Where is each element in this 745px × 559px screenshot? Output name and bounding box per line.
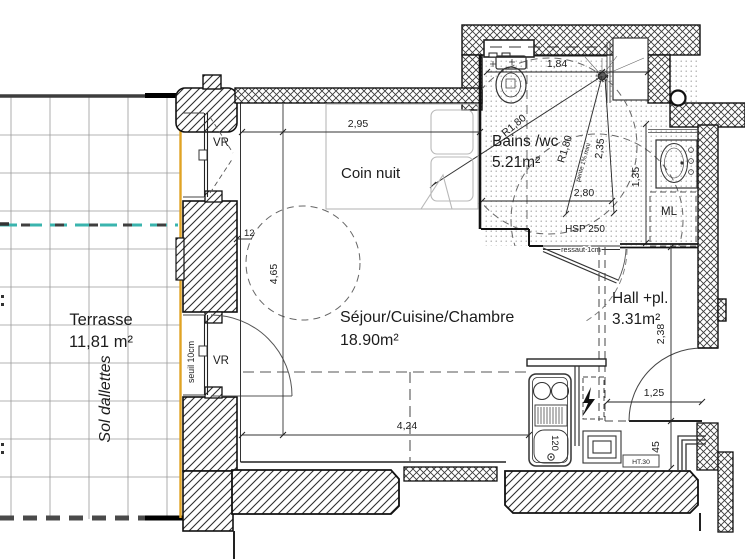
- dim-sejour-depth: 4,65: [268, 264, 280, 285]
- bath-wall-topright: [670, 103, 745, 127]
- facade-pier-mid-bump: [176, 238, 184, 280]
- bathroom: Bains /wc 5.21m² 1,84 R1,80 R1,80 pente …: [235, 25, 745, 348]
- room-area-hall: 3.31m²: [612, 311, 660, 328]
- facade-pier-top-tab: [203, 75, 221, 89]
- kitchen-unit: [529, 374, 571, 466]
- upper-window-vr-label: VR: [213, 137, 229, 149]
- upper-window-handle: [199, 150, 207, 160]
- sejour-dashed-zone: [243, 372, 527, 462]
- room-label-bains: Bains /wc: [492, 133, 559, 150]
- hsp-label: HSP 250: [565, 224, 605, 235]
- room-label-terrasse: Terrasse: [69, 311, 132, 329]
- dim-hall-width: 1,25: [644, 387, 665, 399]
- facade-pier-top: [176, 88, 237, 132]
- dim-bains-depth: 2,35: [593, 138, 607, 160]
- dim-coin-nuit-width: 2,95: [348, 118, 369, 130]
- ml-label: ML: [661, 206, 678, 218]
- dim-kitchen-unit: 120: [549, 435, 560, 451]
- seuil-label: seuil 10cm: [186, 341, 196, 383]
- room-area-terrasse: 11,81 m²: [69, 333, 133, 351]
- floor-plan: Terrasse 11,81 m² Sol dallettes VR VR se…: [0, 0, 745, 559]
- room-label-sejour: Séjour/Cuisine/Chambre: [340, 309, 514, 326]
- bath-wall-right: [698, 125, 718, 348]
- floor-plan-drawing: Terrasse 11,81 m² Sol dallettes VR VR se…: [0, 0, 745, 559]
- dim-basin-bay: 1,35: [630, 167, 642, 188]
- bottom-wall-light: [404, 467, 497, 481]
- wall-stub-lines: [234, 513, 700, 559]
- coin-nuit-top-band: [235, 88, 482, 103]
- ressaut-label: ressaut 1cm: [561, 245, 601, 254]
- room-area-sejour: 18.90m²: [340, 332, 399, 349]
- dim-bains-diag: 2,80: [574, 187, 595, 199]
- kitchen: 120: [527, 359, 606, 466]
- electrical-bolt-icon: [582, 387, 595, 417]
- turning-circle: [246, 206, 360, 320]
- lower-window-handle: [199, 346, 207, 356]
- entry-pier-outer: [718, 452, 733, 532]
- entry-pier-inner: [697, 423, 718, 470]
- kitchen-cabinet-lines: [575, 366, 579, 446]
- burner: [552, 383, 569, 400]
- room-label-hall: Hall +pl.: [612, 290, 668, 307]
- room-label-coin-nuit: Coin nuit: [341, 165, 401, 182]
- burner: [534, 383, 551, 400]
- kitchen-counter-edge: [527, 359, 606, 366]
- bath-wall-right-bump: [718, 299, 726, 321]
- bottom-wall-right: [505, 471, 698, 513]
- terrace: Terrasse 11,81 m² Sol dallettes: [0, 96, 183, 520]
- dim-sejour-width: 4,24: [397, 420, 418, 432]
- lower-window-door: VR seuil 10cm: [183, 315, 292, 396]
- terrace-tile-grid: [0, 97, 180, 519]
- entry-door-swing: [629, 348, 702, 421]
- room-area-bains: 5.21m²: [492, 154, 540, 171]
- duct-divider-wall: [648, 55, 670, 103]
- terrace-edge-marks: [1, 295, 4, 454]
- bath-door-swing: [618, 249, 626, 281]
- facade-pier-mid: [183, 201, 237, 312]
- bottom-wall-left: [232, 470, 399, 514]
- lower-window-vr-label: VR: [213, 355, 229, 367]
- dim-bains-width: 1,84: [547, 58, 568, 70]
- dim-entry-niche: 45: [650, 441, 662, 453]
- dim-pier-offset: 12: [244, 228, 255, 239]
- dim-hall-depth: 2,38: [655, 324, 667, 345]
- pipe-column: [671, 91, 686, 106]
- facade-corner-block: [183, 471, 233, 531]
- facade-pier-bottom: [183, 397, 237, 471]
- terrasse-floor-note: Sol dallettes: [97, 355, 114, 442]
- ht30-label: HT.30: [632, 459, 650, 466]
